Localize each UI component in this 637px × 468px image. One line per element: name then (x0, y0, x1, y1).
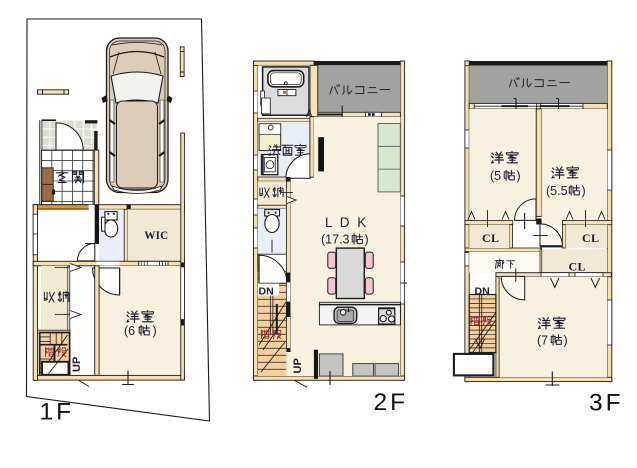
svg-text:CL: CL (582, 231, 599, 245)
svg-text:): ) (564, 334, 568, 348)
svg-text:(17.3: (17.3 (321, 233, 350, 247)
svg-text:DN: DN (259, 286, 274, 298)
svg-text:(5.5: (5.5 (546, 184, 568, 198)
svg-text:WIC: WIC (144, 230, 168, 242)
svg-text:L D K: L D K (325, 215, 368, 230)
svg-text:): ) (582, 184, 586, 198)
svg-text:(6: (6 (124, 324, 135, 338)
svg-text:CL: CL (569, 260, 586, 274)
svg-text:UP: UP (292, 358, 304, 373)
svg-text:2F: 2F (374, 389, 409, 416)
svg-text:): ) (153, 324, 157, 338)
svg-text:): ) (517, 169, 521, 183)
svg-text:CL: CL (482, 231, 499, 245)
svg-text:3F: 3F (589, 390, 624, 417)
svg-text:1F: 1F (40, 399, 75, 426)
svg-text:): ) (365, 233, 369, 247)
svg-text:(5: (5 (490, 169, 501, 183)
svg-text:UP: UP (71, 357, 83, 372)
svg-text:(7: (7 (537, 334, 548, 348)
